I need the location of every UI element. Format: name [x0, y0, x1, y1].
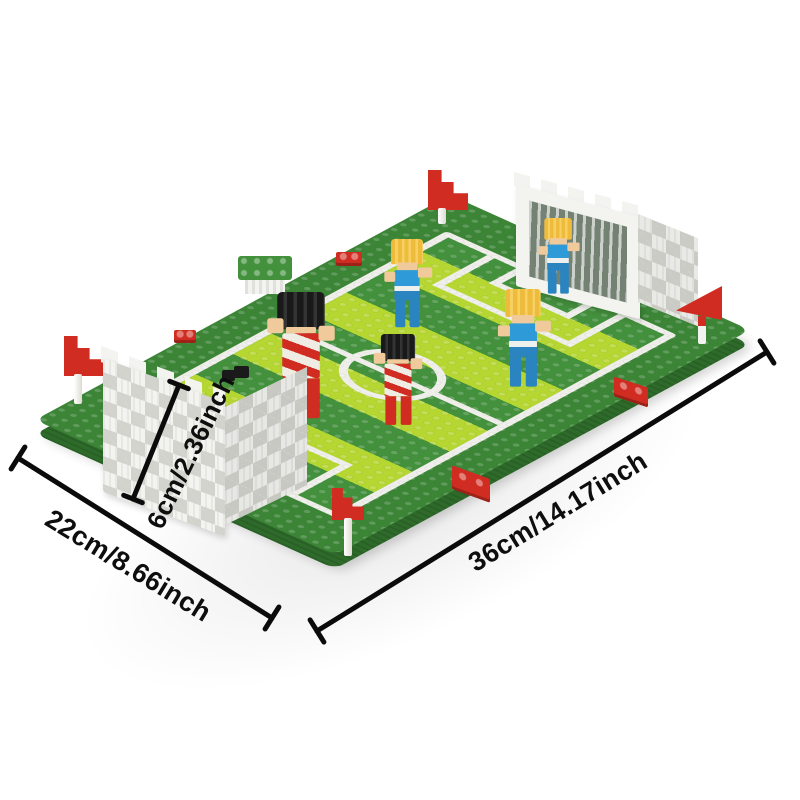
arm-block: [319, 326, 335, 341]
flag-pole: [438, 208, 446, 224]
player-blue-1: [387, 239, 427, 327]
hair-block: [277, 292, 325, 330]
corner-flag-south: [332, 488, 372, 560]
arm-block: [498, 325, 510, 336]
torso-block: [509, 323, 537, 356]
arm-block: [374, 353, 386, 364]
corner-flag-east: [676, 286, 726, 348]
flag-pole: [344, 518, 352, 556]
torso-block: [394, 270, 419, 300]
arm-block: [418, 268, 432, 278]
legs: [387, 300, 427, 327]
hair-block: [505, 289, 540, 317]
corner-flag-north: [428, 170, 478, 230]
red-marker-plate: [174, 330, 196, 343]
torso-block: [385, 364, 412, 396]
bench-top: [238, 256, 292, 280]
hair-block: [381, 334, 415, 361]
flag-icon: [676, 286, 722, 320]
legs: [501, 357, 546, 387]
flag-icon: [428, 170, 468, 210]
legs: [541, 271, 576, 294]
torso-block: [547, 245, 569, 271]
flag-icon: [332, 488, 364, 520]
face-block: [512, 315, 534, 323]
arm-block: [384, 272, 395, 282]
arm-block: [411, 358, 423, 369]
flag-icon: [64, 336, 104, 376]
arm-block: [567, 242, 579, 251]
flag-pole: [698, 316, 706, 344]
flag-pole: [74, 374, 82, 404]
arm-block: [267, 318, 283, 333]
hair-block: [391, 239, 423, 264]
arm-block: [535, 321, 551, 332]
red-marker-plate: [336, 252, 362, 266]
player-blue-2: [501, 289, 546, 387]
product-dimension-image: 22cm/8.66inch 36cm/14.17inch 6cm/2.36inc…: [0, 0, 800, 800]
player-blue-3: [541, 218, 576, 294]
arm-block: [539, 246, 548, 255]
player-red-2: [376, 334, 419, 425]
face-block: [397, 263, 417, 271]
legs: [376, 396, 419, 425]
hair-block: [544, 218, 571, 240]
